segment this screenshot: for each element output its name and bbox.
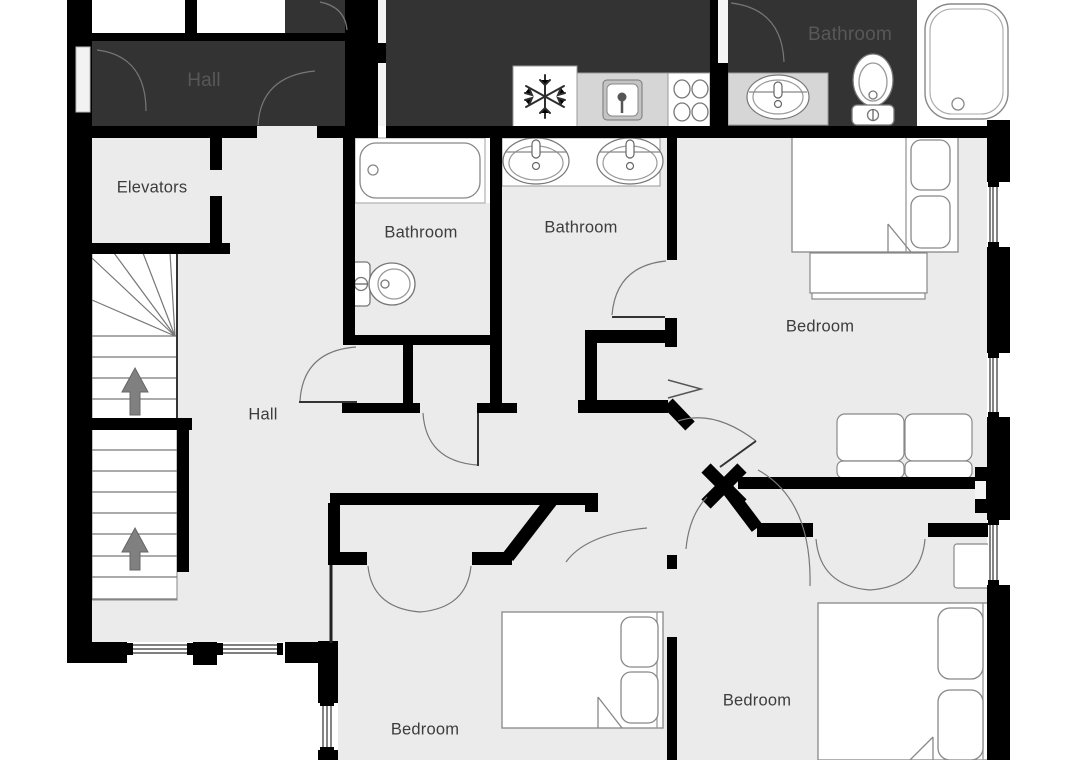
room-label-bathroom-left: Bathroom	[384, 224, 457, 243]
bed-bottom-right	[818, 603, 990, 760]
fridge	[513, 66, 577, 127]
toilet-top-right	[852, 54, 894, 125]
nightstand	[954, 544, 990, 588]
room-label-bedroom-bottom-middle: Bedroom	[391, 721, 459, 740]
room-label-bathroom-middle: Bathroom	[544, 219, 617, 238]
sink-icon	[503, 138, 569, 184]
room-label-bathroom-upper-right: Bathroom	[808, 24, 892, 46]
double-vanity	[502, 138, 663, 186]
bed-bench	[810, 253, 927, 299]
room-label-hall-upper: Hall	[187, 70, 221, 92]
window-icon	[76, 47, 90, 112]
room-label-bedroom-right: Bedroom	[786, 318, 854, 337]
room-label-hall-main: Hall	[248, 406, 277, 425]
room-label-elevators: Elevators	[117, 179, 188, 198]
toilet-left	[352, 262, 415, 306]
floorplan-canvas	[0, 0, 1080, 760]
bed-top-right	[792, 135, 958, 252]
window-icon	[988, 182, 999, 585]
stove	[668, 73, 710, 127]
floorplan: Hall Bathroom Elevators Bathroom Bathroo…	[0, 0, 1080, 760]
vanity-top-right	[728, 73, 828, 125]
sofa	[837, 414, 972, 478]
kitchen-counter	[577, 73, 668, 127]
kitchen-sink-icon	[603, 80, 642, 120]
room-label-bedroom-bottom-right: Bedroom	[723, 692, 791, 711]
window-icon	[320, 701, 334, 752]
bed-bottom-middle	[502, 612, 663, 728]
bathtub-left	[355, 138, 485, 203]
sink-icon	[597, 138, 663, 184]
sink-icon	[747, 75, 809, 119]
bathtub-top-right	[925, 4, 1008, 119]
